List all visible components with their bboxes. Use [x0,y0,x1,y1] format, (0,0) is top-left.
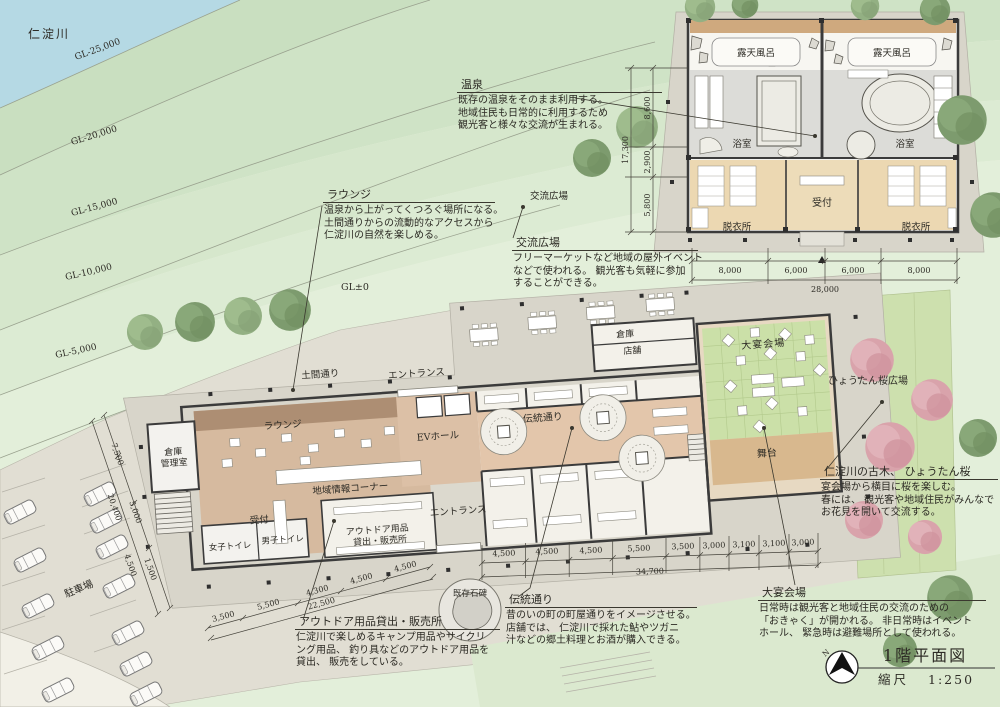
annotation-onsen: 温泉 既存の温泉をそのまま利用する。 地域住民も日常的に利用するため 観光客と様… [457,78,662,133]
dim-label: 6,000 [785,266,808,275]
cherry-tree-icon [911,379,953,421]
sheet-title: 1階平面図 [883,646,967,665]
room-label: 浴室 [895,138,914,150]
dim-label: 2,900 [643,151,652,174]
annotation-line: などで使われる。 観光客も気軽に参加 [512,266,698,279]
table-icon [646,293,675,317]
annotation-koryu: 交流広場 フリーマーケットなど地域の屋外イベント などで使われる。 観光客も気軽… [512,236,698,291]
room-label: 露天風呂 [873,48,911,59]
room-label: 脱衣所 [902,221,931,233]
scale-label: 縮尺 [878,672,909,687]
dim-label: 3,500 [671,542,694,552]
dim-label: 6,000 [842,266,865,275]
dim-label: 8,000 [719,266,742,275]
annotation-line: 貸出、 販売をしている。 [295,657,500,670]
annotation-line: 地域住民も日常的に利用するため [457,108,662,121]
annotation-title: 伝統通り [505,593,697,608]
stage-steps [687,434,705,461]
annotation-line: 汁などの郷土料理とお酒が購入できる。 [505,635,697,648]
annotation-line: することができる。 [512,278,698,291]
tree-icon [269,289,311,331]
annotation-line: フリーマーケットなど地域の屋外イベント [512,253,698,266]
annotation-line: 既存の温泉をそのまま利用する。 [457,95,662,108]
river-label: 仁淀川 [28,27,70,41]
annotation-lounge: ラウンジ 温泉から上がってくつろぐ場所になる。 土間通りからの流動的なアクセスか… [323,188,495,243]
stairs [154,492,193,534]
sakura-plaza-label: ひょうたん桜広場 [828,374,908,387]
contour-label: GL±0 [341,282,369,293]
annotation-line: 日常時は観光客と地域住民の交流のための [758,603,986,616]
tree-icon [573,139,611,177]
elevator-shaft [416,396,442,418]
annotation-line: 店舗では、 仁淀川で採れた鮎やツガニ [505,623,697,636]
dim-label: 3,000 [791,538,814,548]
tree-icon [127,314,163,350]
room-label: 露天風呂 [737,48,775,59]
onsen-reception-counter [800,176,844,185]
annotation-line: 昔のいの町の町屋通りをイメージさせる。 [505,610,697,623]
annotation-title: 温泉 [457,78,662,93]
annotation-dento: 伝統通り 昔のいの町の町屋通りをイメージさせる。 店舗では、 仁淀川で採れた鮎や… [505,593,697,648]
dim-label: 17,300 [621,136,630,164]
floor-plan-sheet: 駐車場 [0,0,1000,707]
dim-label: 4,500 [492,549,515,559]
koryu-plaza-label: 交流広場 [530,190,569,202]
room-label: 浴室 [732,138,751,150]
tree-icon [959,419,997,457]
dim-label: 5,800 [643,194,652,217]
dim-label: 4,500 [579,546,602,556]
annotation-outdoor: アウトドア用品貸出・販売所 仁淀川で楽しめるキャンプ用品やサイクリ ング用品、 … [295,615,500,670]
annotation-line: 春には、 観光客や地域住民がみんなで [820,495,998,508]
dim-label: 4,500 [535,547,558,557]
annotation-line: 土間通りからの流動的なアクセスから [323,218,495,231]
dim-label: 28,000 [811,285,839,294]
dim-label: 3,100 [762,539,785,549]
stone-label: 既存石碑 [453,588,488,599]
scale-value: 1:250 [928,672,974,687]
annotation-title: 交流広場 [512,236,698,251]
dim-label: 34,700 [636,567,664,577]
dim-label: 3,000 [702,541,725,551]
cherry-tree-icon [908,520,942,554]
room-label: 受付 [812,196,832,209]
annotation-sakura: 仁淀川の古木、 ひょうたん桜 宴会場から横目に桜を楽しむ。 春には、 観光客や地… [820,465,998,520]
annotation-title: 大宴会場 [758,586,986,601]
annotation-line: ング用品、 釣り具などのアウトドア用品を [295,645,500,658]
annotation-line: 温泉から上がってくつろぐ場所になる。 [323,205,495,218]
annotation-line: 仁淀川の自然を楽しめる。 [323,230,495,243]
annotation-line: 仁淀川で楽しめるキャンプ用品やサイクリ [295,632,500,645]
table-icon [586,301,615,325]
room-label: 脱衣所 [723,221,752,233]
dim-label: 3,100 [732,540,755,550]
reception-room [786,160,858,230]
elevator-shaft [444,394,470,416]
annotation-line: 「おきゃく」が開かれる。 非日常時はイベント [758,616,986,629]
table-icon [527,311,556,335]
dim-label: 5,500 [627,544,650,554]
annotation-line: 宴会場から横目に桜を楽しむ。 [820,482,998,495]
dim-label: 8,000 [908,266,931,275]
annotation-banquet: 大宴会場 日常時は観光客と地域住民の交流のための 「おきゃく」が開かれる。 非日… [758,586,986,641]
annotation-title: ラウンジ [323,188,495,203]
table-icon [469,323,498,347]
tree-icon [937,95,986,144]
annotation-title: 仁淀川の古木、 ひょうたん桜 [820,465,998,480]
annotation-title: アウトドア用品貸出・販売所 [295,615,500,630]
tree-icon [224,297,262,335]
tree-icon [175,302,215,342]
onsen-plan: 露天風呂 露天風呂 浴室 浴室 受付 脱衣所 脱衣所 [654,12,984,263]
room-label: 受付 [249,513,269,526]
annotation-line: ホール、 緊急時は避難場所として使われる。 [758,628,986,641]
annotation-line: お花見を開いて交流する。 [820,507,998,520]
annotation-line: 観光客と様々な交流が生まれる。 [457,120,662,133]
